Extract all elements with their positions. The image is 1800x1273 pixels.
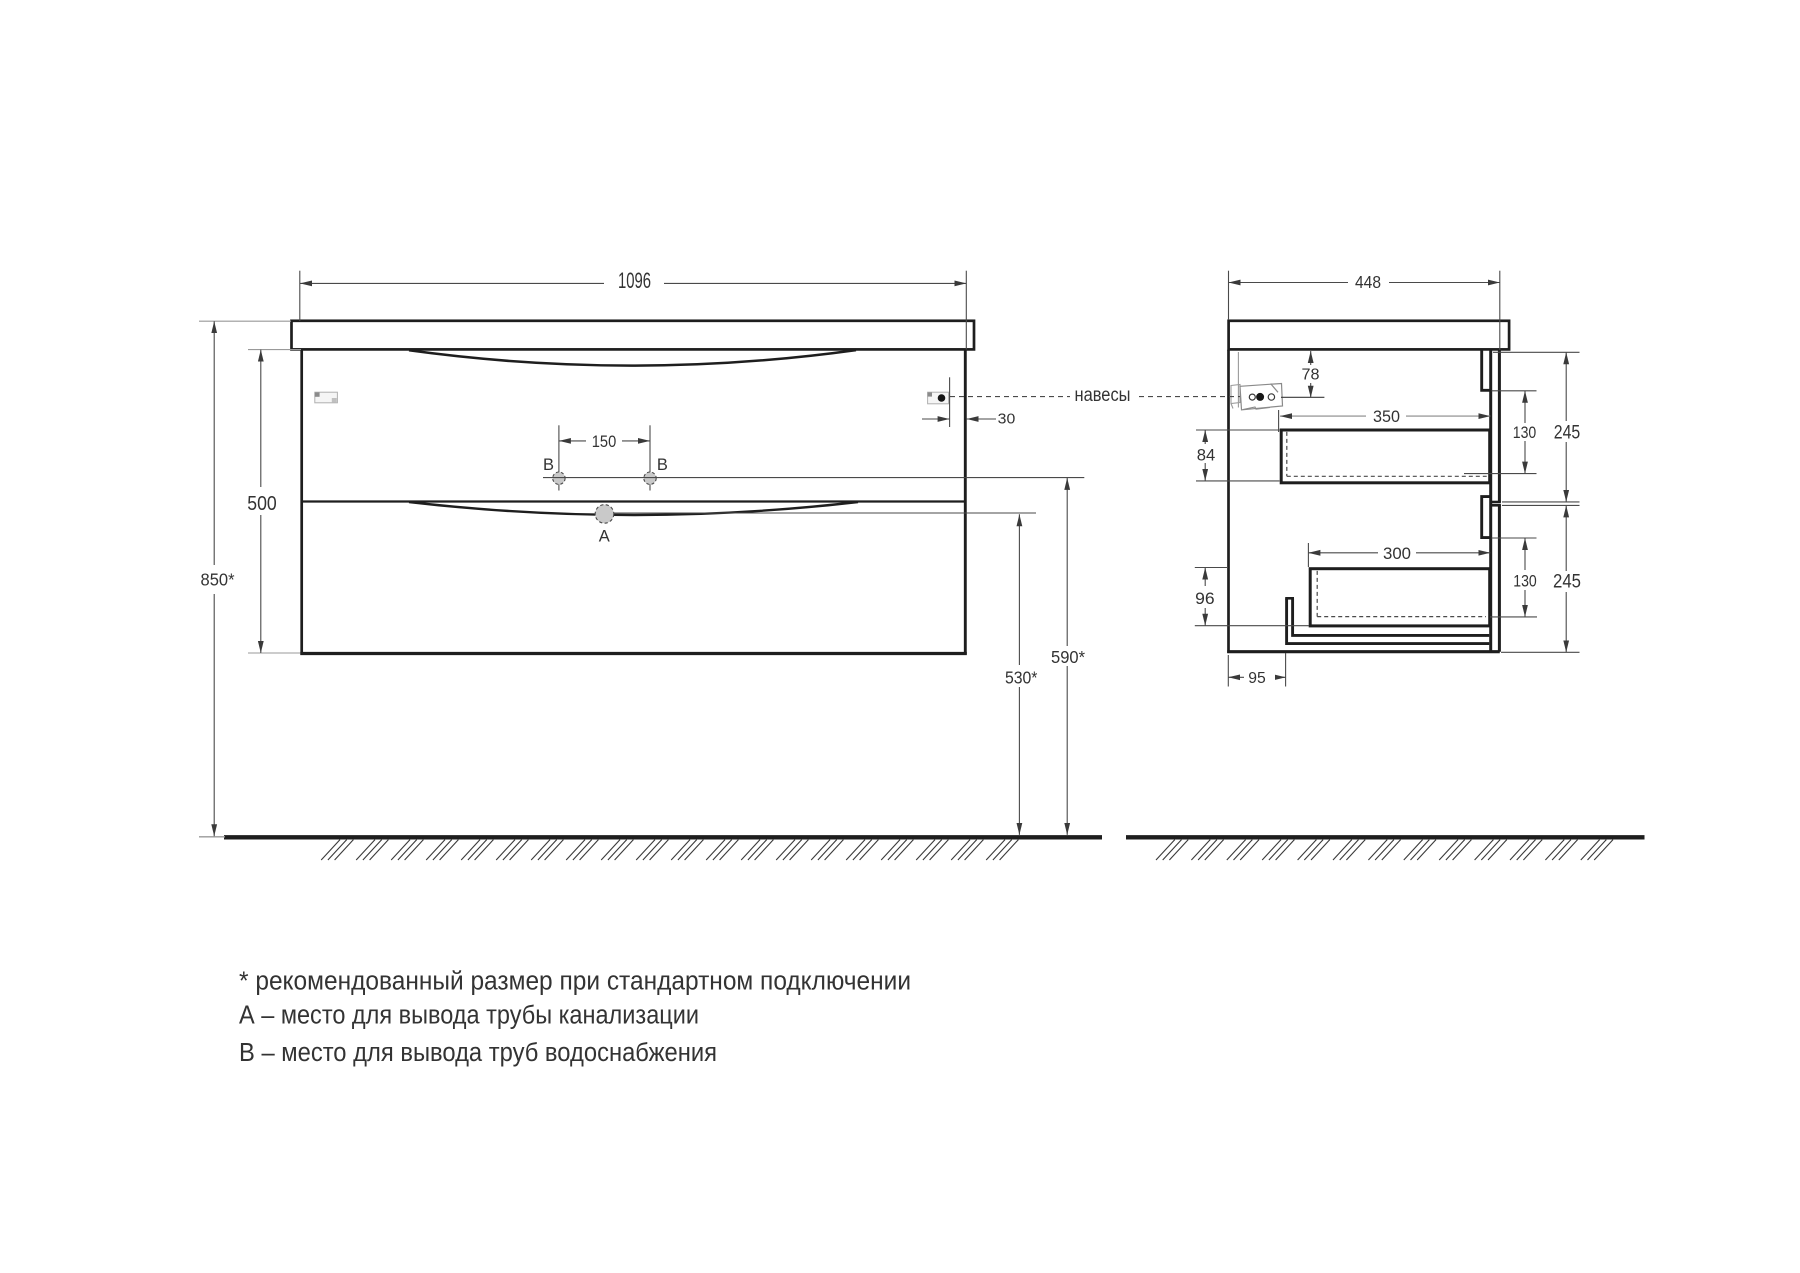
svg-text:245: 245 [1553,570,1581,592]
svg-text:850*: 850* [201,570,235,590]
svg-text:30: 30 [998,412,1016,428]
svg-text:В: В [543,456,554,474]
svg-text:500: 500 [247,493,277,515]
svg-text:150: 150 [592,432,617,451]
svg-text:* рекомендованный размер при с: * рекомендованный размер при стандартном… [239,967,911,995]
svg-text:130: 130 [1513,572,1537,590]
svg-text:А: А [599,528,610,546]
svg-text:навесы: навесы [1075,385,1131,406]
svg-text:В: В [657,456,668,474]
svg-text:590*: 590* [1051,647,1085,667]
svg-text:В – место для вывода труб водо: В – место для вывода труб водоснабжения [239,1039,717,1067]
svg-text:300: 300 [1383,545,1411,563]
svg-text:245: 245 [1554,422,1581,444]
svg-text:1096: 1096 [618,268,651,293]
svg-text:95: 95 [1248,670,1266,687]
svg-text:78: 78 [1302,367,1320,384]
svg-text:448: 448 [1355,272,1381,292]
svg-text:84: 84 [1197,446,1216,465]
svg-text:А – место для вывода трубы кан: А – место для вывода трубы канализации [239,1002,699,1030]
svg-text:350: 350 [1373,408,1400,426]
svg-text:530*: 530* [1005,667,1038,687]
svg-text:130: 130 [1513,424,1537,442]
svg-text:96: 96 [1195,589,1215,608]
